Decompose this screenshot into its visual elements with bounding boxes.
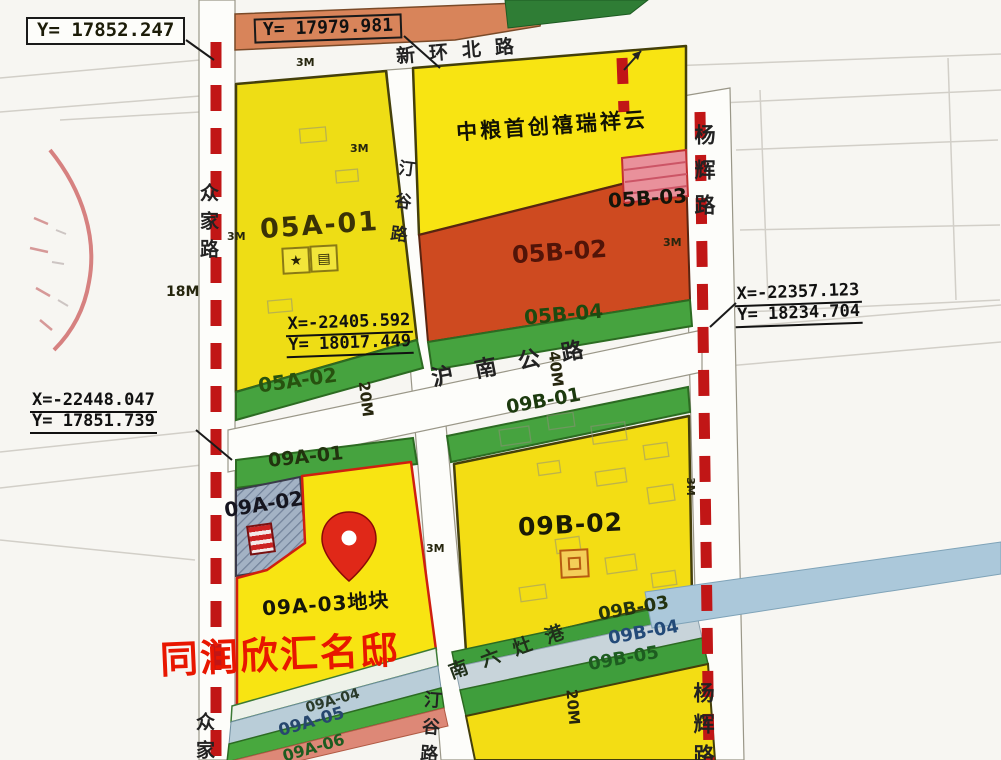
dim-3m-west: 3M [227,230,246,243]
dim-3m-09b02: 3M [684,477,697,496]
coord-east-y: Y= 18234.704 [735,303,862,328]
road-label-yanghui-north: 杨辉路 [693,124,715,229]
green-wedge-top [505,0,648,28]
planning-map: Y= 17852.247 Y= 17979.981 X=-22405.592 Y… [0,0,1001,760]
coord-center-y: Y= 18017.449 [286,333,413,358]
red-seal [30,150,91,350]
parcel-label-05B-03: 05B-03 [607,185,687,211]
coord-label-east: X=-22357.123 Y= 18234.704 [734,282,862,328]
coord-label-center: X=-22405.592 Y= 18017.449 [285,312,413,358]
road-label-zhongjia-north: 众家路 [197,183,217,267]
coord-label-nw: Y= 17852.247 [26,17,185,45]
school-site-icon [559,548,589,578]
facility-icon: ▤ [309,244,338,272]
dim-3m-05a01: 3M [350,142,369,155]
parcel-label-09B-02: 09B-02 [517,509,623,541]
coord-west-y: Y= 17851.739 [30,413,157,434]
dim-18m: 18M [166,284,199,300]
dim-3m-tinggu: 3M [426,542,445,555]
school-site-icon-inner [568,557,582,571]
road-label-zhongjia-south: 众家路 [193,712,213,760]
coord-label-north-road: Y= 17979.981 [254,13,403,43]
coord-west-x: X=-22448.047 [30,392,157,413]
star-landmark-icon: ★ [281,246,310,274]
dim-3m-east: 3M [663,236,682,249]
dim-3m-top: 3M [296,56,315,69]
dim-20m-south: 20M [562,688,583,725]
striped-marker-icon [246,522,276,555]
coord-label-west: X=-22448.047 Y= 17851.739 [30,392,157,434]
road-label-yanghui-south: 杨辉路 [692,682,714,760]
